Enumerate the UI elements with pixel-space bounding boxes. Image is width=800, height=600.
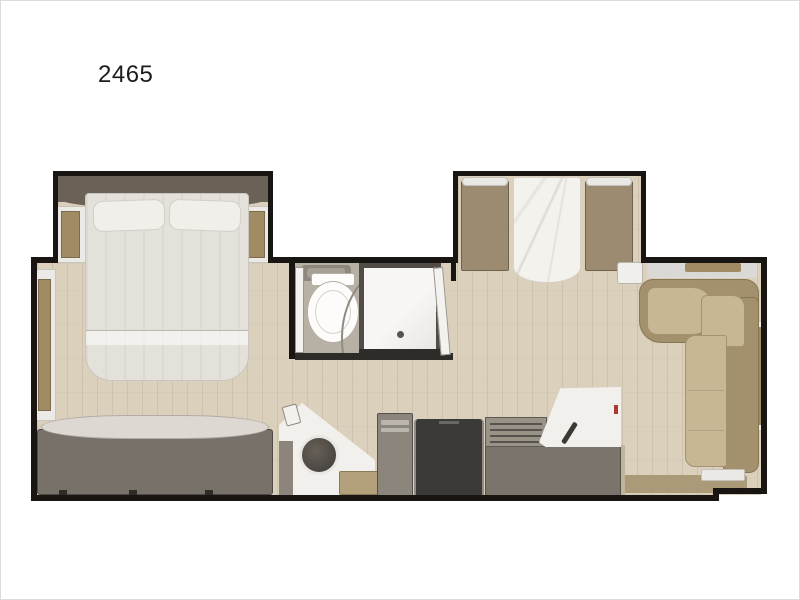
dinette-slide-wall-left	[453, 171, 458, 263]
dinette-bench-right-cap	[586, 177, 632, 186]
kitchen-counter	[485, 445, 621, 497]
end-table	[617, 262, 643, 284]
sink-cabinet-side	[279, 441, 293, 495]
bed-fold-line	[86, 330, 248, 345]
range-cooktop	[485, 417, 547, 447]
rear-wall	[761, 257, 767, 494]
top-wall-middle	[268, 257, 458, 263]
bed-slide-wall-left	[53, 171, 58, 263]
refrigerator	[414, 419, 484, 499]
entry-step	[339, 471, 379, 495]
nightstand-left	[61, 211, 80, 258]
dinette-table	[513, 177, 581, 283]
dinette-slide-wall-top	[453, 171, 646, 176]
bottom-wall-step-joint	[713, 488, 719, 501]
dinette-bench-left-cap	[462, 177, 508, 186]
pantry	[377, 413, 413, 497]
shower-drain	[397, 331, 404, 338]
dresser-top-edge	[41, 415, 269, 439]
range-grate	[490, 435, 542, 437]
pillow-right	[168, 199, 241, 232]
accent-mark	[614, 405, 618, 414]
sofa-seam	[688, 390, 724, 391]
round-sink	[299, 435, 339, 475]
bottom-wall	[31, 495, 719, 501]
front-wall	[31, 257, 37, 501]
bed-slide-wall-right	[268, 171, 273, 263]
bottom-wall-step	[713, 488, 767, 494]
pantry-shelf-line	[381, 420, 409, 425]
dinette-bench-left	[461, 181, 509, 271]
bed-slide-wall-top	[53, 171, 273, 176]
bathroom-bottom-wall	[295, 353, 453, 360]
model-number-label: 2465	[98, 61, 153, 89]
range-grate	[490, 423, 542, 425]
refrigerator-handle	[439, 421, 459, 424]
dinette-bench-right	[585, 181, 633, 271]
range-grate	[490, 441, 542, 443]
top-wall-right	[641, 257, 767, 263]
floorplan-image: 2465	[0, 0, 800, 600]
sofa-long-seat	[685, 335, 727, 467]
shower	[359, 263, 441, 355]
rear-window-valance	[685, 263, 741, 272]
dinette-slide-wall-right	[641, 171, 646, 263]
bath-wall-stub	[451, 259, 456, 281]
pantry-shelf-line	[381, 428, 409, 432]
sofa-base-trim	[701, 469, 745, 481]
front-wardrobe	[38, 279, 51, 411]
pillow-left	[92, 199, 165, 232]
floor-threshold	[621, 445, 625, 497]
bedroom-door	[295, 267, 304, 353]
range-grate	[490, 429, 542, 431]
sofa-seam	[688, 430, 724, 431]
